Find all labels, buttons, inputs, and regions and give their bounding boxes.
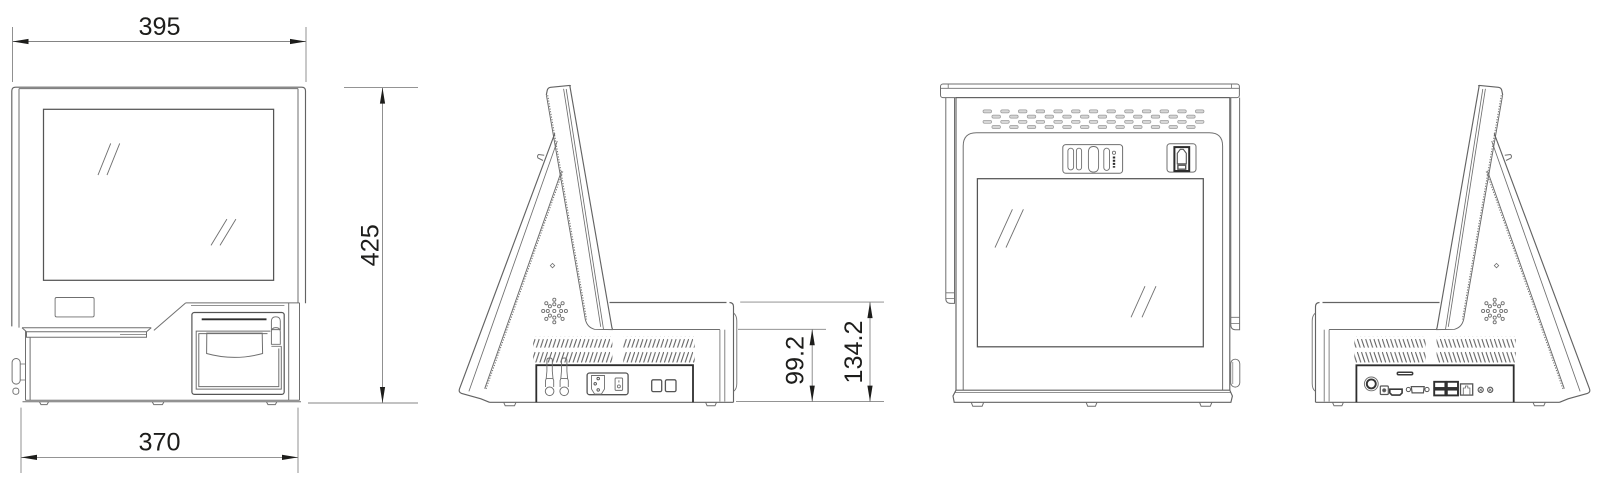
svg-text:370: 370 (138, 429, 180, 457)
svg-text:395: 395 (138, 13, 180, 41)
svg-text:99.2: 99.2 (782, 336, 810, 385)
svg-text:134.2: 134.2 (840, 320, 868, 383)
svg-text:425: 425 (357, 224, 385, 266)
